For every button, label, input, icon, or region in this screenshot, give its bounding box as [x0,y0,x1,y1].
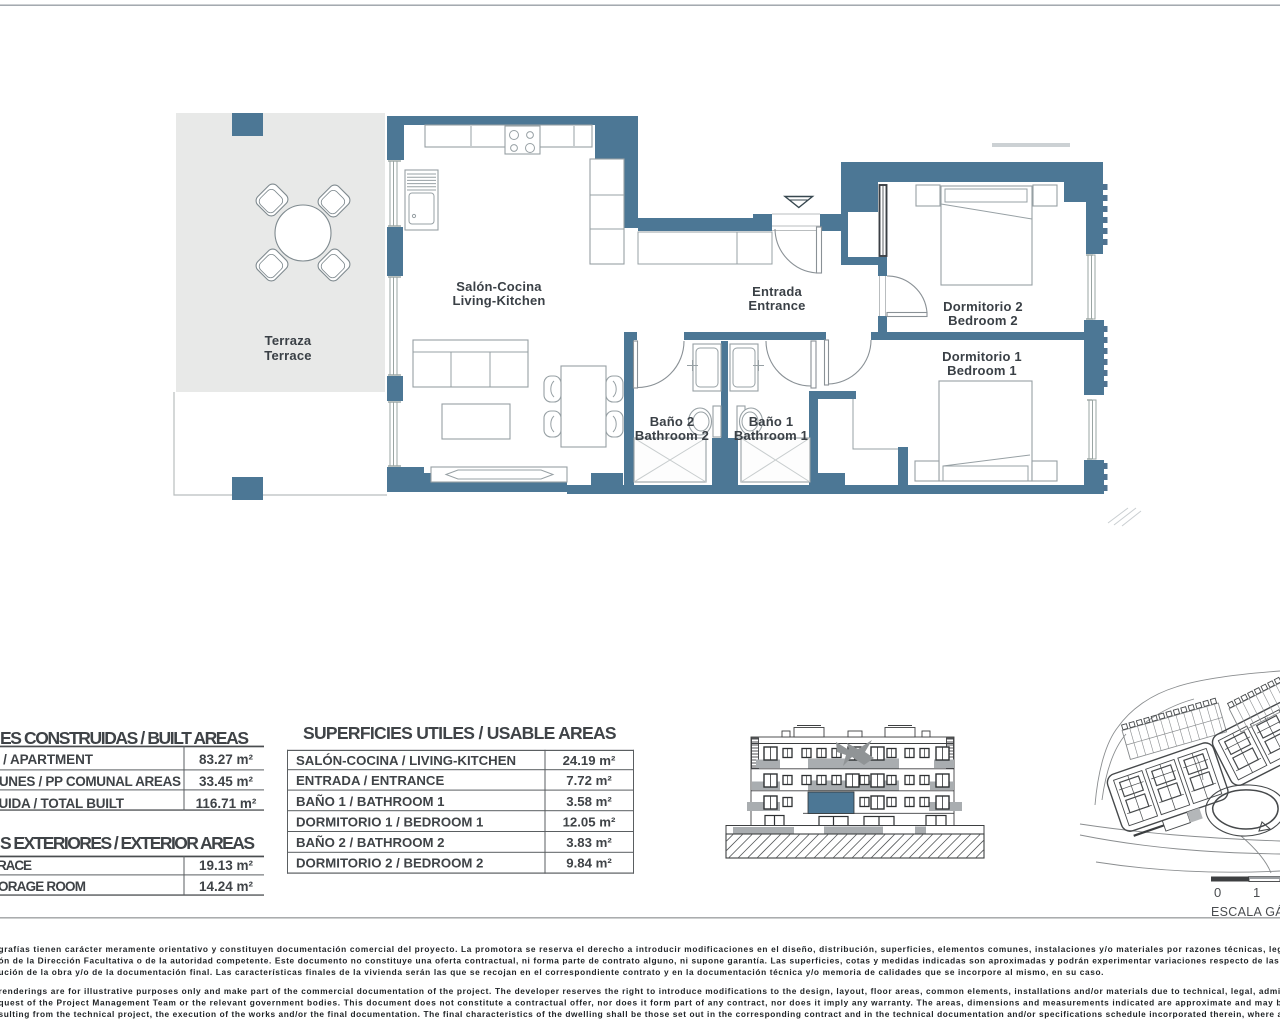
svg-text:12.05 m²: 12.05 m² [563,814,616,829]
svg-text:RACE: RACE [0,858,32,873]
svg-text:116.71 m²: 116.71 m² [196,796,257,811]
svg-text:BAÑO 2 / BATHROOM 2: BAÑO 2 / BATHROOM 2 [296,835,445,850]
svg-text:DORMITORIO 1 / BEDROOM 1: DORMITORIO 1 / BEDROOM 1 [296,814,483,829]
svg-text:0: 0 [1214,885,1221,900]
svg-text:quest of the Project Managemen: quest of the Project Management Team or … [0,998,1280,1008]
svg-text:Salón-Cocina: Salón-Cocina [456,279,542,294]
svg-text:ES CONSTRUIDAS / BUILT AREAS: ES CONSTRUIDAS / BUILT AREAS [0,728,249,748]
svg-text:SALÓN-COCINA / LIVING-KITCHEN: SALÓN-COCINA / LIVING-KITCHEN [296,753,516,768]
svg-text:BAÑO 1 / BATHROOM 1: BAÑO 1 / BATHROOM 1 [296,794,445,809]
svg-text:MUNES / PP COMUNAL AREAS: MUNES / PP COMUNAL AREAS [0,774,181,789]
svg-text:Dormitorio 2: Dormitorio 2 [943,299,1023,314]
svg-text:9.84 m²: 9.84 m² [566,856,612,871]
svg-text:ESCALA GÁFICA: ESCALA GÁFICA [1211,904,1280,919]
svg-text:Terrace: Terrace [264,348,311,363]
svg-text:14.24 m²: 14.24 m² [199,879,254,894]
svg-text:ón de la Dirección Facultativa: ón de la Dirección Facultativa o de la a… [0,956,1280,966]
svg-text:24.19 m²: 24.19 m² [563,753,616,768]
svg-text:Bedroom 2: Bedroom 2 [948,313,1018,328]
svg-text:83.27 m²: 83.27 m² [199,752,254,767]
svg-text:7.72 m²: 7.72 m² [566,773,612,788]
svg-text:renderings are for illustrativ: renderings are for illustrative purposes… [0,986,1280,996]
svg-text:S EXTERIORES / EXTERIOR AREAS: S EXTERIORES / EXTERIOR AREAS [0,833,255,853]
svg-text:1: 1 [1253,885,1260,900]
svg-text:DORMITORIO 2 / BEDROOM 2: DORMITORIO 2 / BEDROOM 2 [296,856,483,871]
svg-text:Entrada: Entrada [752,284,802,299]
svg-text:Baño 2: Baño 2 [650,414,695,429]
svg-text:ución de la obra y/o de la doc: ución de la obra y/o de la documentación… [0,967,1103,977]
svg-text:Bathroom 2: Bathroom 2 [635,428,709,443]
svg-text:3.83 m²: 3.83 m² [566,835,612,850]
svg-text:Entrance: Entrance [748,298,805,313]
svg-text:O / APARTMENT: O / APARTMENT [0,752,94,767]
svg-text:ENTRADA / ENTRANCE: ENTRADA / ENTRANCE [296,773,444,788]
svg-text:Bedroom 1: Bedroom 1 [947,363,1017,378]
svg-text:33.45 m²: 33.45 m² [199,774,254,789]
svg-text:19.13 m²: 19.13 m² [199,858,254,873]
svg-text:Dormitorio 1: Dormitorio 1 [942,349,1022,364]
svg-text:SUPERFICIES UTILES / USABLE AR: SUPERFICIES UTILES / USABLE AREAS [303,723,617,743]
svg-text:ORAGE ROOM: ORAGE ROOM [0,879,86,894]
svg-text:Baño 1: Baño 1 [749,414,794,429]
svg-text:sulting from the technical pro: sulting from the technical project, the … [0,1009,1280,1019]
svg-text:grafías tienen carácter merame: grafías tienen carácter meramente orient… [0,944,1280,954]
svg-text:RUIDA / TOTAL BUILT: RUIDA / TOTAL BUILT [0,796,125,811]
svg-text:Living-Kitchen: Living-Kitchen [452,293,545,308]
svg-text:3.58 m²: 3.58 m² [566,794,612,809]
svg-text:Terraza: Terraza [265,333,312,348]
svg-text:Bathroom 1: Bathroom 1 [734,428,808,443]
